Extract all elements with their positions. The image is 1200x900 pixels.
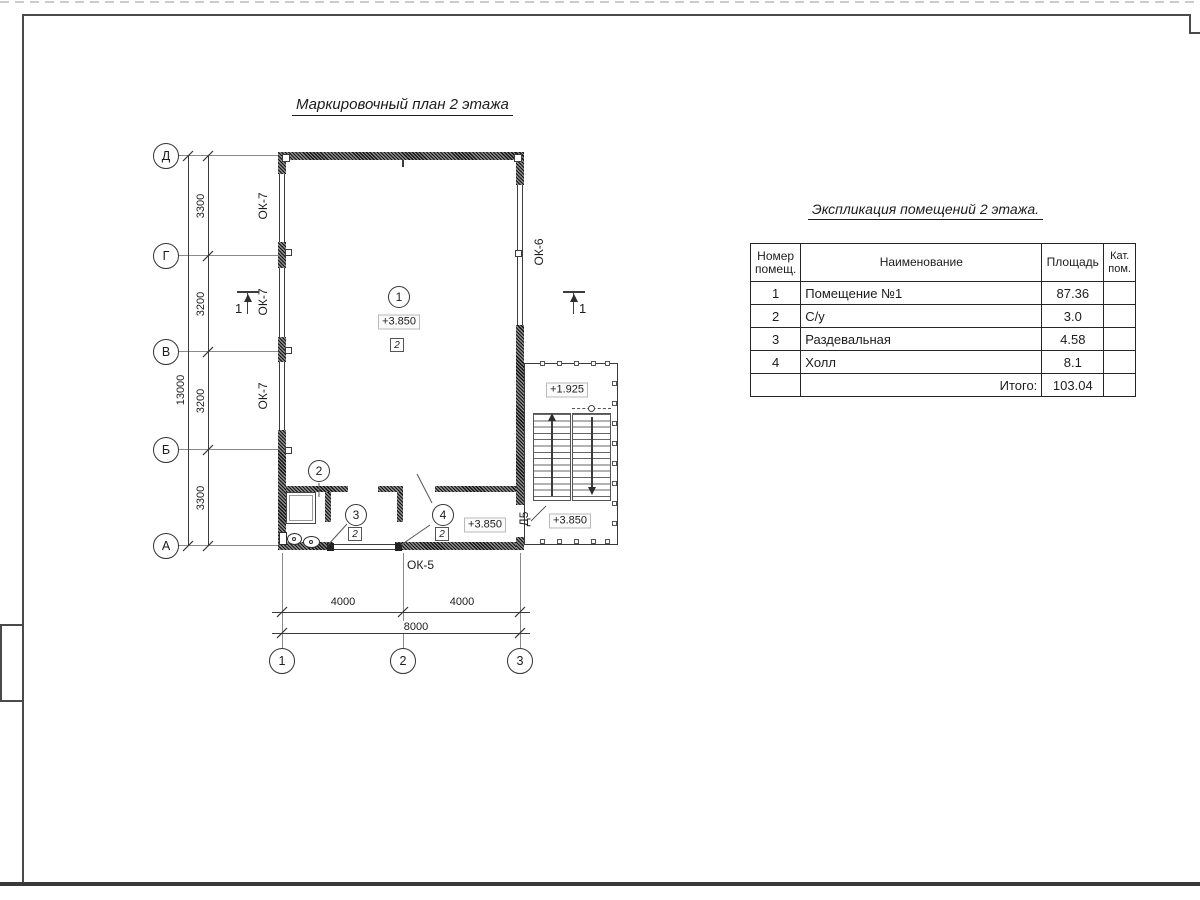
dim-text-4000b: 4000 bbox=[449, 596, 475, 608]
cell-cat bbox=[1104, 305, 1136, 328]
cell-num-empty bbox=[751, 374, 801, 397]
axis-circle-v: В bbox=[153, 339, 179, 365]
window-ok7-1 bbox=[279, 174, 285, 242]
partition-wc-side bbox=[325, 492, 331, 522]
corner-post-top-right bbox=[514, 154, 522, 162]
stair-up-arrow-line bbox=[551, 420, 553, 496]
dim-text-8000: 8000 bbox=[403, 621, 429, 633]
window-ok7-2 bbox=[279, 268, 285, 337]
annex-tick bbox=[612, 501, 617, 506]
floor-type-room1: 2 bbox=[390, 338, 404, 352]
axis-line-v bbox=[178, 351, 278, 352]
header-cat: Кат. пом. bbox=[1104, 244, 1136, 282]
annex-tick bbox=[612, 381, 617, 386]
top-wall-center-tick bbox=[402, 160, 404, 167]
annex-tick bbox=[612, 481, 617, 486]
total-label: Итого: bbox=[801, 374, 1042, 397]
annex-tick bbox=[574, 539, 579, 544]
table-row: 1 Помещение №1 87.36 bbox=[751, 282, 1136, 305]
floor-type-room3: 2 bbox=[348, 527, 362, 541]
dim-line-bottom-total bbox=[272, 633, 530, 634]
axis-line-a bbox=[178, 545, 278, 546]
dim-text-3300b: 3300 bbox=[195, 486, 207, 510]
corner-post-top-left bbox=[282, 154, 290, 162]
ticks-and-leaders bbox=[0, 0, 700, 700]
table-row: 3 Раздевальная 4.58 bbox=[751, 328, 1136, 351]
annex-tick bbox=[612, 521, 617, 526]
annex-tick bbox=[612, 461, 617, 466]
total-value: 103.04 bbox=[1042, 374, 1104, 397]
wall-top bbox=[278, 152, 524, 160]
room-marker-3: 3 bbox=[345, 504, 367, 526]
cell-num: 1 bbox=[751, 282, 801, 305]
room-marker-1: 1 bbox=[388, 286, 410, 308]
window-label-ok7-3: ОК-7 bbox=[256, 383, 270, 410]
dim-line-bottom-segments bbox=[272, 612, 530, 613]
cell-cat-empty bbox=[1104, 374, 1136, 397]
window-ok5-jamb-right bbox=[395, 543, 402, 551]
section-label-right: 1 bbox=[579, 301, 586, 316]
table-row: 4 Холл 8.1 bbox=[751, 351, 1136, 374]
cell-area: 4.58 bbox=[1042, 328, 1104, 351]
section-arrowhead-right bbox=[570, 294, 578, 302]
post-left-axis-v bbox=[285, 347, 292, 354]
window-ok7-3 bbox=[279, 362, 285, 430]
stair-down-arrow-line bbox=[591, 417, 593, 489]
cell-name: С/у bbox=[801, 305, 1042, 328]
cell-num: 4 bbox=[751, 351, 801, 374]
annex-tick bbox=[605, 361, 610, 366]
table-row: 2 С/у 3.0 bbox=[751, 305, 1136, 328]
post-left-axis-b bbox=[285, 447, 292, 454]
elevation-annex: +3.850 bbox=[549, 514, 591, 529]
elevation-landing: +1.925 bbox=[546, 383, 588, 398]
dim-text-13000: 13000 bbox=[175, 375, 187, 406]
axis-circle-3: 3 bbox=[507, 648, 533, 674]
annex-tick bbox=[540, 539, 545, 544]
cell-name: Раздевальная bbox=[801, 328, 1042, 351]
cell-num: 3 bbox=[751, 328, 801, 351]
annex-tick bbox=[612, 401, 617, 406]
window-label-ok5: ОК-5 bbox=[407, 558, 434, 572]
sink-dot bbox=[309, 540, 313, 544]
annex-tick bbox=[574, 361, 579, 366]
room-marker-2: 2 bbox=[308, 460, 330, 482]
elevation-hall: +3.850 bbox=[464, 518, 506, 533]
header-num: Номер помещ. bbox=[751, 244, 801, 282]
cell-area: 3.0 bbox=[1042, 305, 1104, 328]
dim-text-4000a: 4000 bbox=[330, 596, 356, 608]
dim-line-left-total bbox=[188, 156, 189, 546]
section-label-left: 1 bbox=[235, 301, 242, 316]
cell-cat bbox=[1104, 328, 1136, 351]
elevation-room1: +3.850 bbox=[378, 315, 420, 330]
annex-tick bbox=[605, 539, 610, 544]
frame-bottom bbox=[0, 882, 1200, 886]
stair-down-arrowhead bbox=[588, 487, 596, 495]
frame-notch-v bbox=[1189, 14, 1191, 34]
annex-tick bbox=[612, 421, 617, 426]
shower-tray-inner bbox=[289, 495, 313, 521]
cell-cat bbox=[1104, 351, 1136, 374]
stair-cut-circle bbox=[588, 405, 595, 412]
cell-cat bbox=[1104, 282, 1136, 305]
stair-up-arrowhead bbox=[548, 413, 556, 421]
header-name: Наименование bbox=[801, 244, 1042, 282]
cell-area: 8.1 bbox=[1042, 351, 1104, 374]
axis-circle-g: Г bbox=[153, 243, 179, 269]
wall-bottom-right bbox=[395, 542, 524, 550]
frame-notch-h bbox=[1189, 32, 1200, 34]
cell-name: Помещение №1 bbox=[801, 282, 1042, 305]
partition-hall-top bbox=[435, 486, 516, 492]
header-area: Площадь bbox=[1042, 244, 1104, 282]
dim-line-left-segments bbox=[208, 156, 209, 546]
axis-line-d bbox=[178, 155, 278, 156]
post-right-mullion bbox=[515, 250, 522, 257]
annex-tick bbox=[612, 441, 617, 446]
floor-plan: +3.850 +1.925 +3.850 +3.850 1 2 3 4 2 2 … bbox=[0, 0, 700, 700]
table-total-row: Итого: 103.04 bbox=[751, 374, 1136, 397]
post-left-axis-g bbox=[285, 249, 292, 256]
axis-circle-1: 1 bbox=[269, 648, 295, 674]
door-label-d5: Д5 bbox=[517, 512, 531, 527]
toilet-tank bbox=[279, 532, 287, 545]
axis-line-b bbox=[178, 449, 278, 450]
frame-leftcell-bottom bbox=[0, 700, 23, 702]
explication-table: Номер помещ. Наименование Площадь Кат. п… bbox=[750, 243, 1136, 397]
axis-circle-d: Д bbox=[153, 143, 179, 169]
window-ok5 bbox=[333, 544, 395, 550]
annex-tick bbox=[557, 361, 562, 366]
window-label-ok6: ОК-6 bbox=[532, 239, 546, 266]
table-title: Экспликация помещений 2 этажа. bbox=[808, 201, 1043, 220]
cell-area: 87.36 bbox=[1042, 282, 1104, 305]
dim-text-3200b: 3200 bbox=[195, 389, 207, 413]
annex-tick bbox=[591, 539, 596, 544]
drawing-sheet: Маркировочный план 2 этажа bbox=[0, 0, 1200, 900]
annex-tick bbox=[557, 539, 562, 544]
dim-text-3300a: 3300 bbox=[195, 194, 207, 218]
window-label-ok7-1: ОК-7 bbox=[256, 193, 270, 220]
floor-type-room4: 2 bbox=[435, 527, 449, 541]
wall-right-solid bbox=[516, 325, 524, 505]
room-marker-4: 4 bbox=[432, 504, 454, 526]
annex-tick bbox=[540, 361, 545, 366]
axis-circle-2: 2 bbox=[390, 648, 416, 674]
axis-circle-b: Б bbox=[153, 437, 179, 463]
toilet-bowl-dot bbox=[292, 537, 296, 541]
section-arrowhead-left bbox=[244, 294, 252, 302]
dim-text-3200a: 3200 bbox=[195, 292, 207, 316]
table-header-row: Номер помещ. Наименование Площадь Кат. п… bbox=[751, 244, 1136, 282]
annex-tick bbox=[591, 361, 596, 366]
axis-circle-a: А bbox=[153, 533, 179, 559]
wall-right-stub bbox=[516, 537, 524, 550]
cell-name: Холл bbox=[801, 351, 1042, 374]
partition-room3-side bbox=[397, 492, 403, 522]
window-ok5-jamb-left bbox=[327, 543, 334, 551]
axis-line-g bbox=[178, 255, 278, 256]
cell-num: 2 bbox=[751, 305, 801, 328]
